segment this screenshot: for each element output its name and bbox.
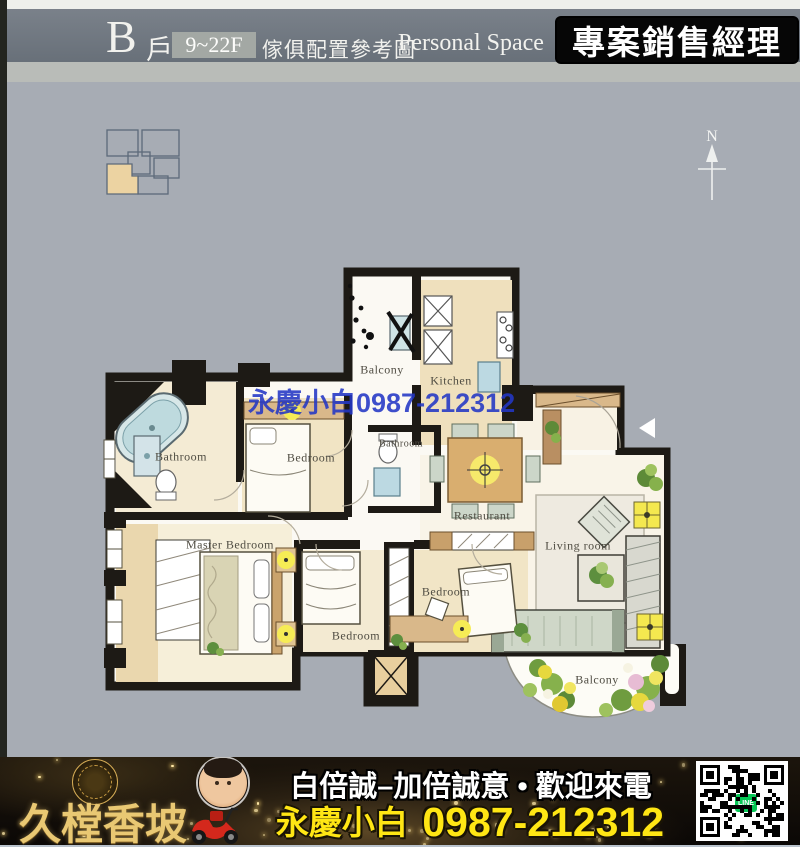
agent-name: 永慶小白 (276, 804, 408, 841)
qr-finder-icon (700, 765, 720, 785)
scooter-icon (186, 799, 244, 845)
qr-finder-icon (700, 817, 720, 837)
qr-code: LINE (696, 761, 788, 841)
room-label-bathroom-left: Bathroom (155, 450, 207, 465)
agent-banner: 久樘香坡 白倍誠–加倍誠意 • 歡迎來電 永慶小白 0987-212312 LI… (0, 757, 800, 845)
scan-edge-left (0, 0, 7, 758)
room-label-master-bedroom: Master Bedroom (186, 538, 274, 553)
floor-plan: N (0, 0, 800, 847)
north-arrow-icon (698, 144, 726, 200)
master-bedroom-furniture (200, 548, 296, 656)
room-label-balcony-bottom: Balcony (575, 673, 619, 688)
room-label-bedroom-bl: Bedroom (332, 629, 380, 644)
bedroom-bl-furniture (302, 552, 360, 624)
elevator-shaft (368, 650, 414, 702)
compass-n: N (706, 128, 718, 145)
building-keyplan (107, 130, 179, 194)
entry-arrow-icon (639, 418, 655, 438)
qr-finder-icon (764, 765, 784, 785)
room-label-bedroom-br: Bedroom (422, 585, 470, 600)
room-label-bathroom-mid: Bathroom (379, 439, 423, 450)
room-label-living-room: Living room (545, 539, 611, 554)
brand-name: 久樘香坡 (4, 791, 202, 845)
banner-contact: 永慶小白 0987-212312 (248, 796, 692, 845)
phone-number: 0987-212312 (422, 799, 664, 845)
room-label-balcony-top: Balcony (360, 363, 404, 378)
room-label-restaurant: Restaurant (454, 509, 510, 524)
room-label-bedroom-mid: Bedroom (287, 451, 335, 466)
agent-watermark: 永慶小白0987-212312 (248, 381, 515, 420)
floorplan-poster: B 戶 9~22F 傢俱配置參考圖 Personal Space 專案銷售經理 … (0, 0, 800, 847)
unit-highlight (107, 164, 138, 194)
